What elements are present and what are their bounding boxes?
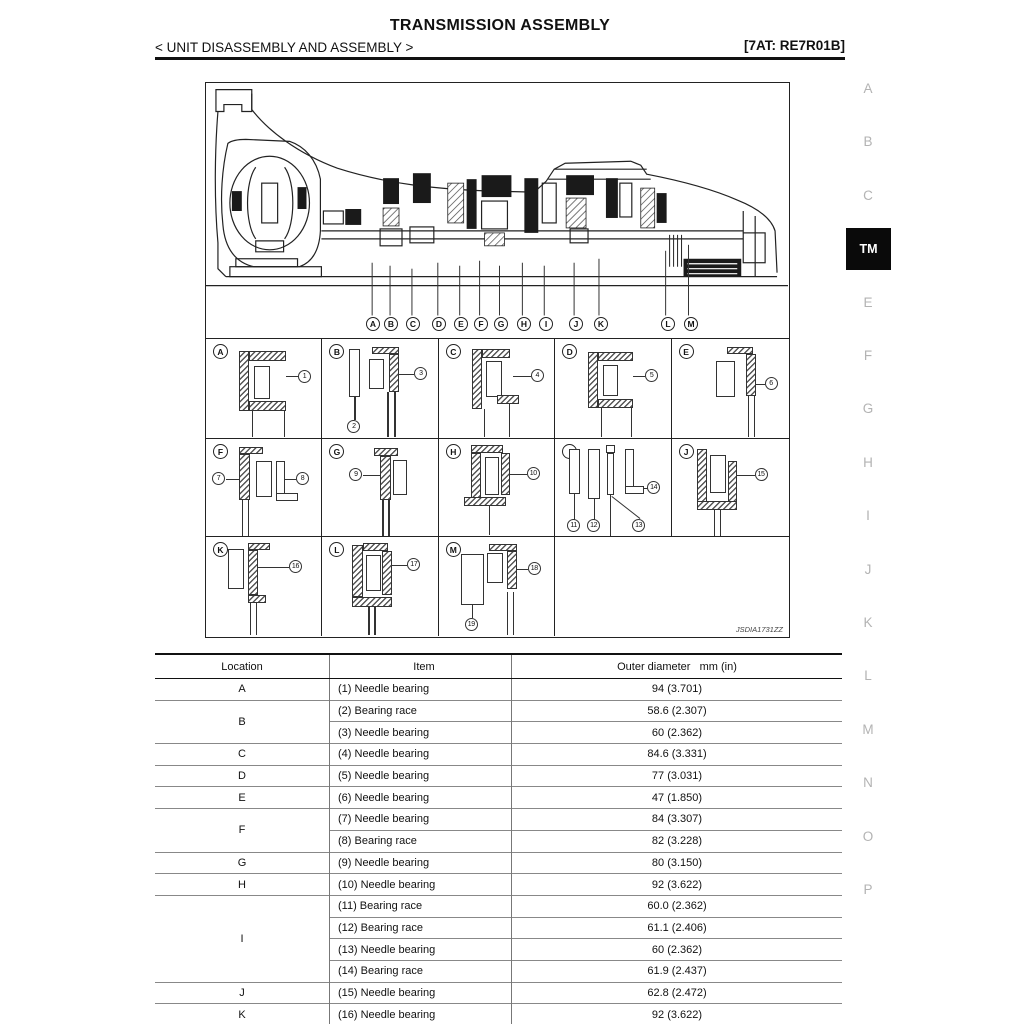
marker-E: E <box>454 317 468 331</box>
item-cell: (11) Bearing race <box>330 895 512 917</box>
page-title: TRANSMISSION ASSEMBLY <box>155 17 845 35</box>
item-cell: (14) Bearing race <box>330 960 512 982</box>
sidebar-letter: C <box>846 187 890 205</box>
detail-cell-L: L 17 <box>322 537 438 636</box>
item-cell: (1) Needle bearing <box>330 679 512 701</box>
sidebar-letter: I <box>846 507 890 525</box>
detail-cell-A: A 1 <box>206 339 322 438</box>
detail-cell-K: K 16 <box>206 537 322 636</box>
detail-grid-empty <box>555 537 789 636</box>
cell-letter-badge: J <box>679 444 694 459</box>
detail-cell-M: M 19 18 <box>439 537 555 636</box>
header-location: Location <box>155 654 330 679</box>
callout-6: 6 <box>765 377 778 390</box>
spec-table: Location Item Outer diameter mm (in) A(1… <box>155 653 842 1024</box>
item-cell: (7) Needle bearing <box>330 809 512 831</box>
diameter-cell: 80 (3.150) <box>512 852 843 874</box>
diameter-cell: 92 (3.622) <box>512 874 843 896</box>
diameter-cell: 60 (2.362) <box>512 722 843 744</box>
marker-L: L <box>661 317 675 331</box>
detail-cell-D: D 5 <box>555 339 671 438</box>
table-header-row: Location Item Outer diameter mm (in) <box>155 654 842 679</box>
section-subtitle: < UNIT DISASSEMBLY AND ASSEMBLY > <box>155 40 413 55</box>
cell-letter-badge: E <box>679 344 694 359</box>
location-cell: F <box>155 809 330 852</box>
callout-13: 13 <box>632 519 645 532</box>
callout-4: 4 <box>531 369 544 382</box>
table-row: C(4) Needle bearing84.6 (3.331) <box>155 744 842 766</box>
diameter-cell: 61.9 (2.437) <box>512 960 843 982</box>
diameter-cell: 84 (3.307) <box>512 809 843 831</box>
callout-16: 16 <box>289 560 302 573</box>
cell-letter-badge: K <box>213 542 228 557</box>
marker-K: K <box>594 317 608 331</box>
location-cell: C <box>155 744 330 766</box>
location-cell: I <box>155 895 330 982</box>
sidebar-letter: N <box>846 774 890 792</box>
detail-cell-F: F 7 8 <box>206 439 322 536</box>
diameter-cell: 47 (1.850) <box>512 787 843 809</box>
location-cell: B <box>155 700 330 743</box>
sidebar-letter: L <box>846 667 890 685</box>
figure-id: JSDIA1731ZZ <box>736 625 783 634</box>
sidebar-letter: O <box>846 828 890 846</box>
table-row: E(6) Needle bearing47 (1.850) <box>155 787 842 809</box>
diameter-cell: 92 (3.622) <box>512 1004 843 1024</box>
table-row: J(15) Needle bearing62.8 (2.472) <box>155 982 842 1004</box>
location-cell: E <box>155 787 330 809</box>
diameter-cell: 94 (3.701) <box>512 679 843 701</box>
sidebar-letter: P <box>846 881 890 899</box>
item-cell: (6) Needle bearing <box>330 787 512 809</box>
header-item: Item <box>330 654 512 679</box>
marker-M: M <box>684 317 698 331</box>
detail-cell-B: B 2 3 <box>322 339 438 438</box>
location-cell: G <box>155 852 330 874</box>
sidebar-tab-active: TM <box>846 228 891 270</box>
sidebar-letter: F <box>846 347 890 365</box>
marker-A: A <box>366 317 380 331</box>
callout-9: 9 <box>349 468 362 481</box>
location-cell: J <box>155 982 330 1004</box>
callout-8: 8 <box>296 472 309 485</box>
diameter-cell: 58.6 (2.307) <box>512 700 843 722</box>
sidebar-letter: M <box>846 721 890 739</box>
diameter-cell: 62.8 (2.472) <box>512 982 843 1004</box>
callout-1: 1 <box>298 370 311 383</box>
table-row: G(9) Needle bearing80 (3.150) <box>155 852 842 874</box>
callout-10: 10 <box>527 467 540 480</box>
table-row: I(11) Bearing race60.0 (2.362) <box>155 895 842 917</box>
marker-I: I <box>539 317 553 331</box>
sidebar-letter: K <box>846 614 890 632</box>
sidebar-letter: B <box>846 133 890 151</box>
sidebar-letter: H <box>846 454 890 472</box>
manual-page: TRANSMISSION ASSEMBLY < UNIT DISASSEMBLY… <box>0 0 1024 1024</box>
diameter-cell: 60.0 (2.362) <box>512 895 843 917</box>
callout-15: 15 <box>755 468 768 481</box>
detail-cell-I: I 11 12 13 14 <box>555 439 671 536</box>
figure-box: A B C D E F G H I J K L M A 1 <box>205 82 790 638</box>
cell-letter-badge: H <box>446 444 461 459</box>
table-row: D(5) Needle bearing77 (3.031) <box>155 765 842 787</box>
marker-D: D <box>432 317 446 331</box>
detail-grid: A 1 B <box>206 338 789 636</box>
header-rule <box>155 57 845 60</box>
diameter-cell: 61.1 (2.406) <box>512 917 843 939</box>
marker-J: J <box>569 317 583 331</box>
cell-letter-badge: L <box>329 542 344 557</box>
diameter-cell: 77 (3.031) <box>512 765 843 787</box>
model-code: [7AT: RE7R01B] <box>744 38 845 53</box>
callout-2: 2 <box>347 420 360 433</box>
item-cell: (4) Needle bearing <box>330 744 512 766</box>
marker-G: G <box>494 317 508 331</box>
callout-12: 12 <box>587 519 600 532</box>
cell-letter-badge: G <box>329 444 344 459</box>
callout-11: 11 <box>567 519 580 532</box>
callout-3: 3 <box>414 367 427 380</box>
sidebar-letter: E <box>846 294 890 312</box>
header-outer-diameter: Outer diameter mm (in) <box>512 654 843 679</box>
sidebar-letter: G <box>846 400 890 418</box>
callout-19: 19 <box>465 618 478 631</box>
location-cell: K <box>155 1004 330 1024</box>
detail-cell-E: E 6 <box>672 339 788 438</box>
table-row: F(7) Needle bearing84 (3.307) <box>155 809 842 831</box>
item-cell: (12) Bearing race <box>330 917 512 939</box>
callout-5: 5 <box>645 369 658 382</box>
marker-F: F <box>474 317 488 331</box>
cell-letter-badge: F <box>213 444 228 459</box>
item-cell: (9) Needle bearing <box>330 852 512 874</box>
table-row: B(2) Bearing race58.6 (2.307) <box>155 700 842 722</box>
table-row: H(10) Needle bearing92 (3.622) <box>155 874 842 896</box>
transmission-cross-section-drawing <box>206 83 788 338</box>
sidebar-letter: J <box>846 561 890 579</box>
item-cell: (13) Needle bearing <box>330 939 512 961</box>
diameter-cell: 60 (2.362) <box>512 939 843 961</box>
detail-cell-H: H 10 <box>439 439 555 536</box>
location-cell: A <box>155 679 330 701</box>
item-cell: (15) Needle bearing <box>330 982 512 1004</box>
cell-letter-badge: D <box>562 344 577 359</box>
marker-C: C <box>406 317 420 331</box>
cell-letter-badge: M <box>446 542 461 557</box>
callout-18: 18 <box>528 562 541 575</box>
callout-14: 14 <box>647 481 660 494</box>
marker-B: B <box>384 317 398 331</box>
detail-cell-C: C 4 <box>439 339 555 438</box>
diameter-cell: 84.6 (3.331) <box>512 744 843 766</box>
detail-cell-J: J 15 <box>672 439 788 536</box>
diameter-cell: 82 (3.228) <box>512 830 843 852</box>
location-cell: H <box>155 874 330 896</box>
detail-cell-G: G 9 <box>322 439 438 536</box>
item-cell: (16) Needle bearing <box>330 1004 512 1024</box>
callout-7: 7 <box>212 472 225 485</box>
item-cell: (5) Needle bearing <box>330 765 512 787</box>
item-cell: (8) Bearing race <box>330 830 512 852</box>
callout-17: 17 <box>407 558 420 571</box>
cell-letter-badge: C <box>446 344 461 359</box>
marker-H: H <box>517 317 531 331</box>
table-row: A(1) Needle bearing94 (3.701) <box>155 679 842 701</box>
cell-letter-badge: A <box>213 344 228 359</box>
cell-letter-badge: B <box>329 344 344 359</box>
item-cell: (3) Needle bearing <box>330 722 512 744</box>
item-cell: (2) Bearing race <box>330 700 512 722</box>
sidebar-letter: A <box>846 80 890 98</box>
location-cell: D <box>155 765 330 787</box>
table-row: K(16) Needle bearing92 (3.622) <box>155 1004 842 1024</box>
item-cell: (10) Needle bearing <box>330 874 512 896</box>
